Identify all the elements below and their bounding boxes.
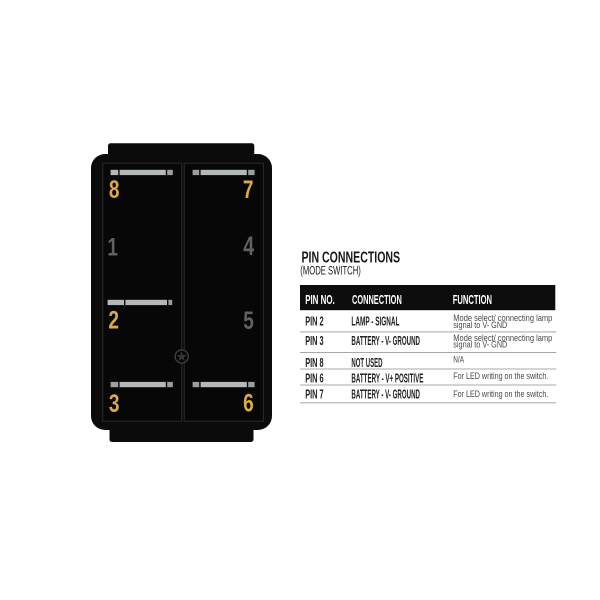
svg-text:NOT USED: NOT USED [351, 356, 382, 370]
svg-text:PIN NO.: PIN NO. [305, 292, 335, 307]
svg-text:(MODE SWITCH): (MODE SWITCH) [300, 264, 361, 278]
svg-text:5: 5 [243, 307, 254, 335]
svg-text:CONNECTION: CONNECTION [352, 292, 402, 307]
svg-text:BATTERY - V- GROUND: BATTERY - V- GROUND [351, 388, 420, 402]
svg-text:For LED writing on the switch.: For LED writing on the switch. [453, 371, 548, 381]
svg-text:8: 8 [109, 176, 120, 204]
svg-text:7: 7 [243, 176, 254, 204]
svg-text:PIN 2: PIN 2 [305, 315, 323, 329]
svg-text:4: 4 [243, 231, 254, 261]
svg-text:signal to V- GND: signal to V- GND [453, 320, 507, 330]
svg-text:For LED writing on the switch.: For LED writing on the switch. [453, 389, 548, 399]
svg-text:LAMP - SIGNAL: LAMP - SIGNAL [351, 315, 399, 329]
svg-text:PIN 6: PIN 6 [305, 372, 323, 386]
svg-text:PIN 3: PIN 3 [305, 334, 323, 348]
svg-text:N/A: N/A [453, 355, 464, 365]
svg-text:signal to V- GND: signal to V- GND [453, 340, 507, 350]
svg-text:PIN 8: PIN 8 [305, 356, 323, 370]
svg-text:BATTERY - V+ POSITIVE: BATTERY - V+ POSITIVE [351, 372, 423, 386]
svg-text:BATTERY - V- GROUND: BATTERY - V- GROUND [351, 334, 420, 348]
svg-text:6: 6 [243, 390, 254, 418]
svg-text:PIN 7: PIN 7 [305, 388, 323, 402]
svg-text:FUNCTION: FUNCTION [453, 292, 492, 307]
svg-text:1: 1 [107, 234, 118, 262]
svg-text:2: 2 [108, 307, 119, 335]
svg-text:3: 3 [109, 390, 120, 418]
